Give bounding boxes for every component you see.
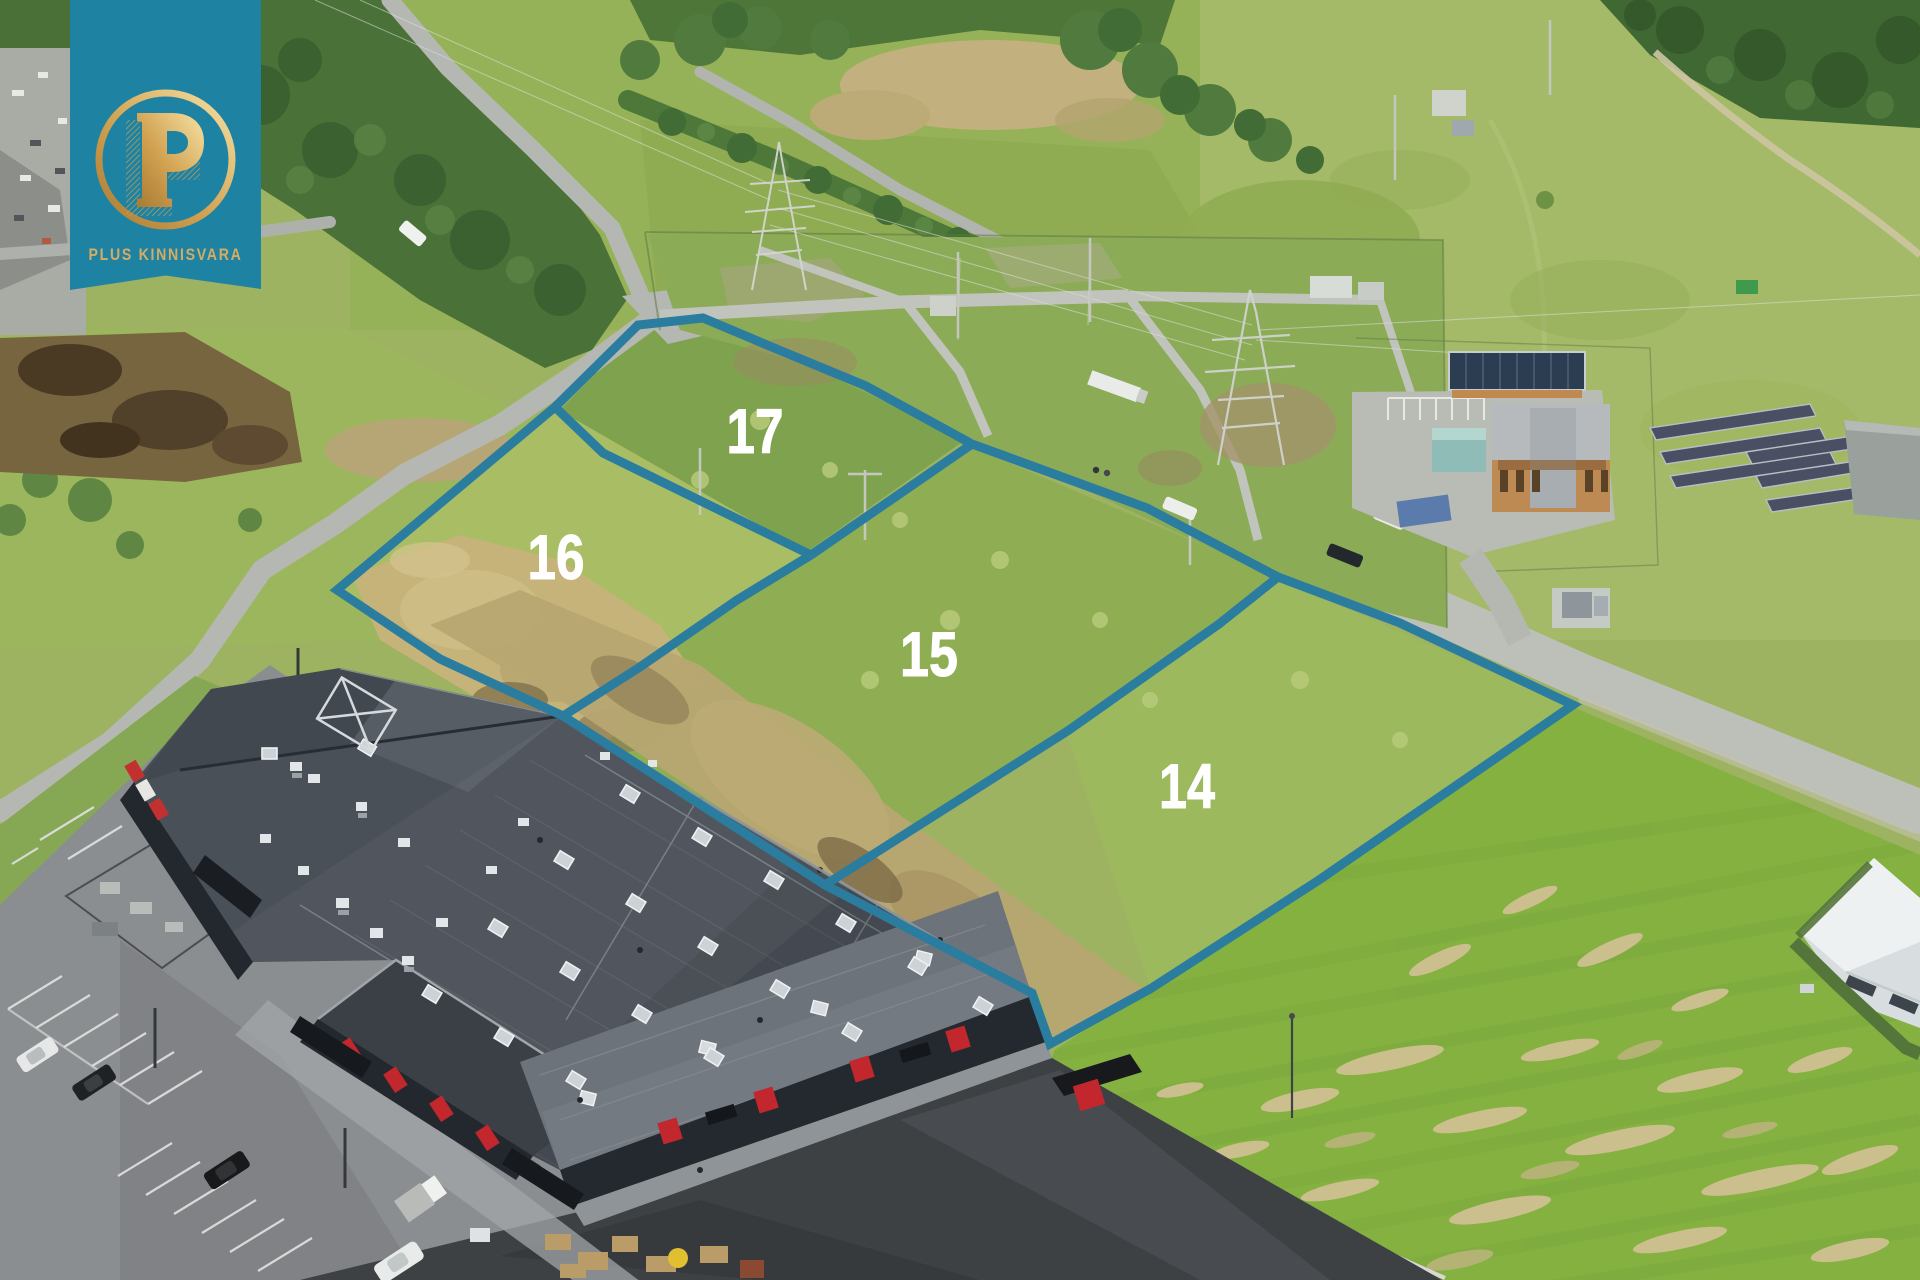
svg-text:PLUS KINNISVARA: PLUS KINNISVARA (89, 246, 243, 264)
svg-text:16: 16 (528, 523, 585, 593)
svg-text:17: 17 (727, 397, 784, 467)
svg-text:15: 15 (900, 620, 958, 690)
svg-text:14: 14 (1159, 752, 1215, 822)
